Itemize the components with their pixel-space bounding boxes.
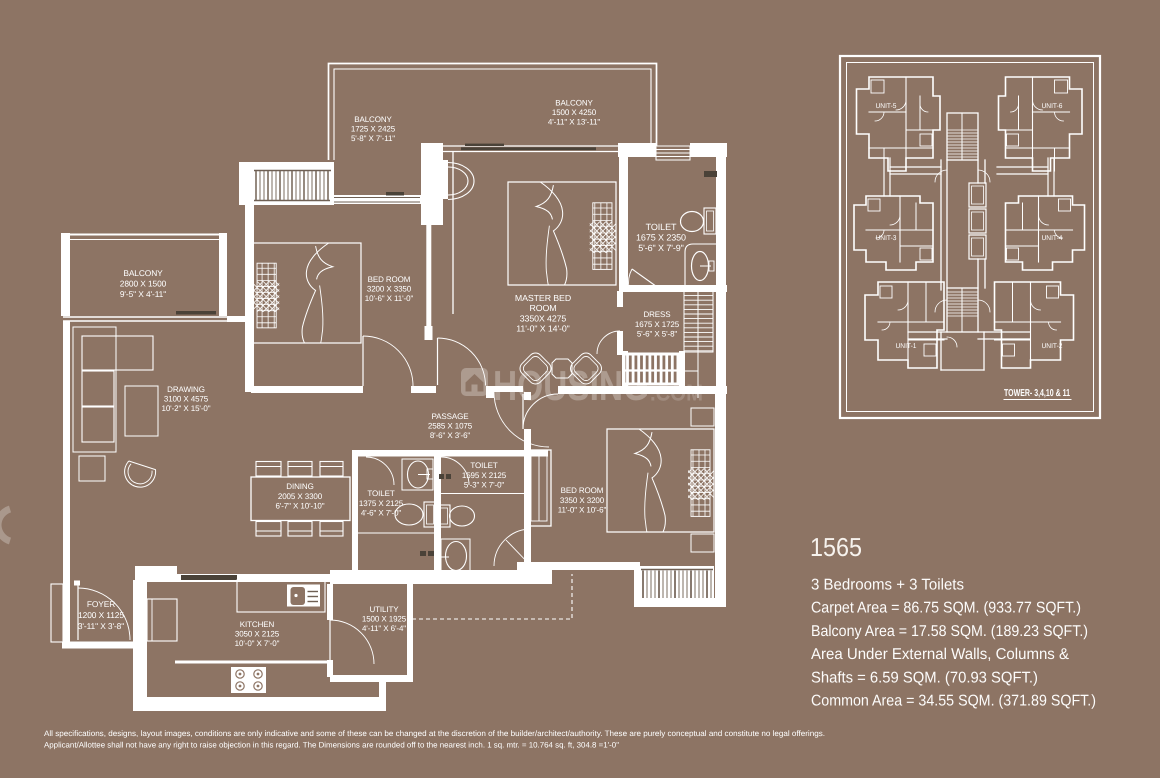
svg-text:11'-0" X 14'-0": 11'-0" X 14'-0" xyxy=(516,324,569,334)
svg-text:DRESS: DRESS xyxy=(643,310,670,319)
svg-text:10'-6" X 11'-0": 10'-6" X 11'-0" xyxy=(365,294,414,303)
svg-text:BALCONY: BALCONY xyxy=(123,268,163,278)
svg-text:1725 X 2425: 1725 X 2425 xyxy=(351,125,396,134)
svg-text:PASSAGE: PASSAGE xyxy=(432,412,469,421)
svg-text:5'-6" X 7'-9": 5'-6" X 7'-9" xyxy=(638,243,684,253)
svg-text:MASTER BED: MASTER BED xyxy=(515,293,571,303)
svg-text:1675 X 2350: 1675 X 2350 xyxy=(636,233,686,243)
svg-text:10'-2" X 15'-0": 10'-2" X 15'-0" xyxy=(161,404,210,413)
svg-text:4'-11" X 13'-11": 4'-11" X 13'-11" xyxy=(548,118,600,127)
svg-text:11'-0" X 10'-6": 11'-0" X 10'-6" xyxy=(558,506,607,515)
svg-text:All specifications, designs, l: All specifications, designs, layout imag… xyxy=(44,729,825,738)
svg-text:TOWER- 3,4,10 & 11: TOWER- 3,4,10 & 11 xyxy=(1004,388,1070,399)
svg-text:BED ROOM: BED ROOM xyxy=(368,275,411,284)
svg-text:4'-11" X 6'-4": 4'-11" X 6'-4" xyxy=(362,624,406,633)
svg-text:8'-6" X 3'-6": 8'-6" X 3'-6" xyxy=(430,431,471,440)
svg-text:KITCHEN: KITCHEN xyxy=(240,620,275,629)
svg-text:TOILET: TOILET xyxy=(470,461,497,470)
svg-text:3 Bedrooms + 3 Toilets: 3 Bedrooms + 3 Toilets xyxy=(811,577,964,594)
svg-text:5'-6" X 5'-8": 5'-6" X 5'-8" xyxy=(637,330,678,339)
svg-text:2585 X 1075: 2585 X 1075 xyxy=(428,421,473,430)
svg-text:BED ROOM: BED ROOM xyxy=(561,486,604,495)
svg-text:1500 X 1925: 1500 X 1925 xyxy=(362,614,407,623)
svg-text:DINING: DINING xyxy=(286,482,313,491)
svg-text:1675 X 1725: 1675 X 1725 xyxy=(635,320,680,329)
svg-text:TOILET: TOILET xyxy=(367,489,394,498)
svg-text:UNIT-5: UNIT-5 xyxy=(876,103,897,110)
svg-text:1565: 1565 xyxy=(810,532,862,562)
svg-text:1200 X 1125: 1200 X 1125 xyxy=(78,610,124,620)
svg-text:3100 X 4575: 3100 X 4575 xyxy=(164,394,209,403)
svg-text:Carpet Area = 86.75 SQM. (933.: Carpet Area = 86.75 SQM. (933.77 SQFT.) xyxy=(811,600,1081,617)
svg-text:4'-6" X 7'-0": 4'-6" X 7'-0" xyxy=(361,509,402,518)
svg-text:3200 X 3350: 3200 X 3350 xyxy=(367,284,412,293)
svg-text:2005 X 3300: 2005 X 3300 xyxy=(278,492,323,501)
svg-text:UNIT-1: UNIT-1 xyxy=(896,343,917,350)
svg-text:1375 X 2125: 1375 X 2125 xyxy=(359,499,404,508)
svg-text:3'-11" X 3'-8": 3'-11" X 3'-8" xyxy=(78,621,124,631)
svg-text:5'-3" X 7'-0": 5'-3" X 7'-0" xyxy=(464,481,505,490)
svg-text:UNIT-3: UNIT-3 xyxy=(876,235,897,242)
svg-text:TOILET: TOILET xyxy=(646,222,677,232)
svg-text:DRAWING: DRAWING xyxy=(167,385,205,394)
svg-text:3350X 4275: 3350X 4275 xyxy=(520,313,567,323)
svg-text:3050 X 2125: 3050 X 2125 xyxy=(235,630,280,639)
svg-text:10'-0" X 7'-0": 10'-0" X 7'-0" xyxy=(235,639,280,648)
svg-text:Area Under External Walls, Col: Area Under External Walls, Columns & xyxy=(811,646,1070,663)
svg-text:Shafts = 6.59 SQM. (70.93 SQFT: Shafts = 6.59 SQM. (70.93 SQFT.) xyxy=(811,669,1038,686)
svg-text:5'-8" X 7'-11": 5'-8" X 7'-11" xyxy=(351,134,395,143)
svg-text:UNIT-4: UNIT-4 xyxy=(1042,235,1063,242)
svg-text:UNIT-2: UNIT-2 xyxy=(1042,343,1063,350)
svg-text:BALCONY: BALCONY xyxy=(555,99,593,108)
svg-text:FOYER: FOYER xyxy=(87,599,115,609)
svg-text:BALCONY: BALCONY xyxy=(354,115,392,124)
svg-text:1595 X 2125: 1595 X 2125 xyxy=(462,471,507,480)
svg-text:Common Area = 34.55 SQM. (371.: Common Area = 34.55 SQM. (371.89 SQFT.) xyxy=(811,693,1096,710)
svg-text:UTILITY: UTILITY xyxy=(369,605,399,614)
svg-text:Balcony Area = 17.58 SQM. (189: Balcony Area = 17.58 SQM. (189.23 SQFT.) xyxy=(811,623,1088,640)
svg-text:1500 X 4250: 1500 X 4250 xyxy=(552,108,597,117)
svg-text:2800 X 1500: 2800 X 1500 xyxy=(120,278,167,288)
svg-text:3350 X 3200: 3350 X 3200 xyxy=(560,496,605,505)
svg-text:Applicant/Allottee shall not h: Applicant/Allottee shall not have any ri… xyxy=(44,741,619,750)
svg-text:ROOM: ROOM xyxy=(530,303,557,313)
svg-text:6'-7" X 10'-10": 6'-7" X 10'-10" xyxy=(275,502,324,511)
svg-text:UNIT-6: UNIT-6 xyxy=(1042,103,1063,110)
svg-text:9'-5" X 4'-11": 9'-5" X 4'-11" xyxy=(120,289,166,299)
